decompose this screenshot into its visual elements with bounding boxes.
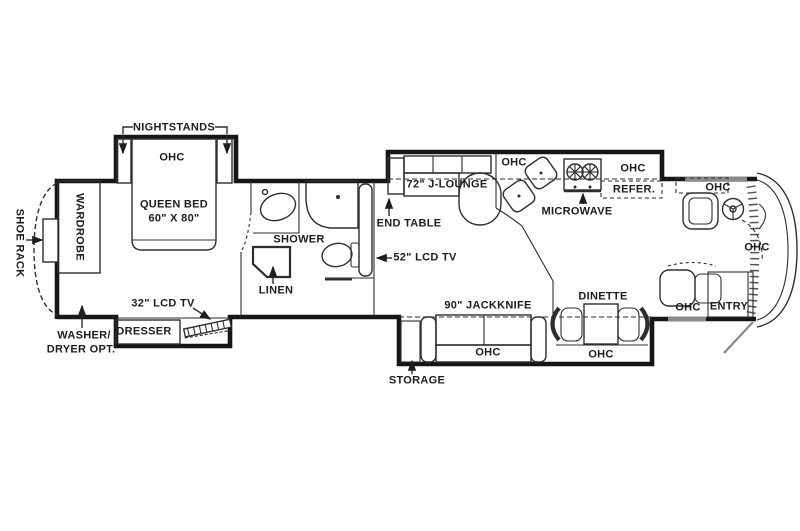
label-ohc-bedroom: OHC <box>159 153 184 164</box>
label-queen-bed-size: 60" X 80" <box>148 214 199 225</box>
label-shoe-rack: SHOE RACK <box>14 209 25 278</box>
cockpit <box>660 178 762 353</box>
label-storage: STORAGE <box>389 376 445 387</box>
shoe-rack-box <box>43 219 58 262</box>
tv-32-arrow <box>193 308 210 319</box>
label-shower: SHOWER <box>273 235 324 246</box>
toilet-icon <box>320 241 354 269</box>
linen-closet <box>253 247 290 277</box>
j-lounge-back <box>404 156 491 173</box>
shower-stall-icon <box>306 181 358 228</box>
label-nightstands: NIGHTSTANDS <box>133 123 215 134</box>
label-entry: ENTRY <box>710 302 748 313</box>
bathroom <box>253 181 392 317</box>
label-jackknife: 90" JACKKNIFE <box>444 301 531 312</box>
nightstands-bracket-right <box>215 127 227 134</box>
label-ohc-sofa: OHC <box>475 348 500 359</box>
label-ohc-passenger: OHC <box>675 303 700 314</box>
label-ohc-refer: OHC <box>620 164 645 175</box>
label-wardrobe: WARDROBE <box>74 193 85 261</box>
label-tv-32: 32" LCD TV <box>131 299 194 310</box>
label-end-table: END TABLE <box>377 219 442 230</box>
sofa-arm-right <box>531 317 546 362</box>
steering-wheel-icon <box>723 199 744 220</box>
nightstands-bracket-left <box>123 127 133 134</box>
label-linen: LINEN <box>259 286 294 297</box>
label-washer-dryer-2: DRYER OPT. <box>47 345 116 356</box>
tv-52-icon <box>359 184 372 276</box>
nightstand-left <box>117 139 131 183</box>
dinette-table <box>584 304 618 344</box>
label-ohc-driver: OHC <box>705 183 730 194</box>
label-dresser: DRESSER <box>116 327 171 338</box>
nightstand-right <box>217 139 232 183</box>
dinette-booth <box>553 304 649 345</box>
end-table-icon <box>388 158 404 194</box>
label-dinette: DINETTE <box>578 292 627 303</box>
label-washer-dryer-1: WASHER/ <box>57 331 110 342</box>
label-refrigerator: REFER. <box>613 185 655 196</box>
faucet-icon <box>263 190 268 195</box>
floorplan-linework <box>0 0 800 531</box>
label-queen-bed: QUEEN BED <box>140 200 208 211</box>
label-j-lounge: 72" J-LOUNGE <box>407 180 488 191</box>
storage-bay <box>401 321 420 362</box>
entry-door-swing <box>724 322 753 353</box>
label-ohc-front: OHC <box>744 243 769 254</box>
label-tv-52: 52" LCD TV <box>393 253 456 264</box>
label-ohc-kitchen: OHC <box>501 158 526 169</box>
sofa-arm-left <box>421 317 436 362</box>
cooktop-icon <box>564 159 601 191</box>
bedroom <box>26 127 251 344</box>
label-ohc-dinette: OHC <box>588 350 613 361</box>
label-microwave: MICROWAVE <box>542 207 613 218</box>
rv-floorplan: NIGHTSTANDS OHC QUEEN BED 60" X 80" SHOE… <box>0 0 800 531</box>
window-segment-entry <box>668 317 706 322</box>
